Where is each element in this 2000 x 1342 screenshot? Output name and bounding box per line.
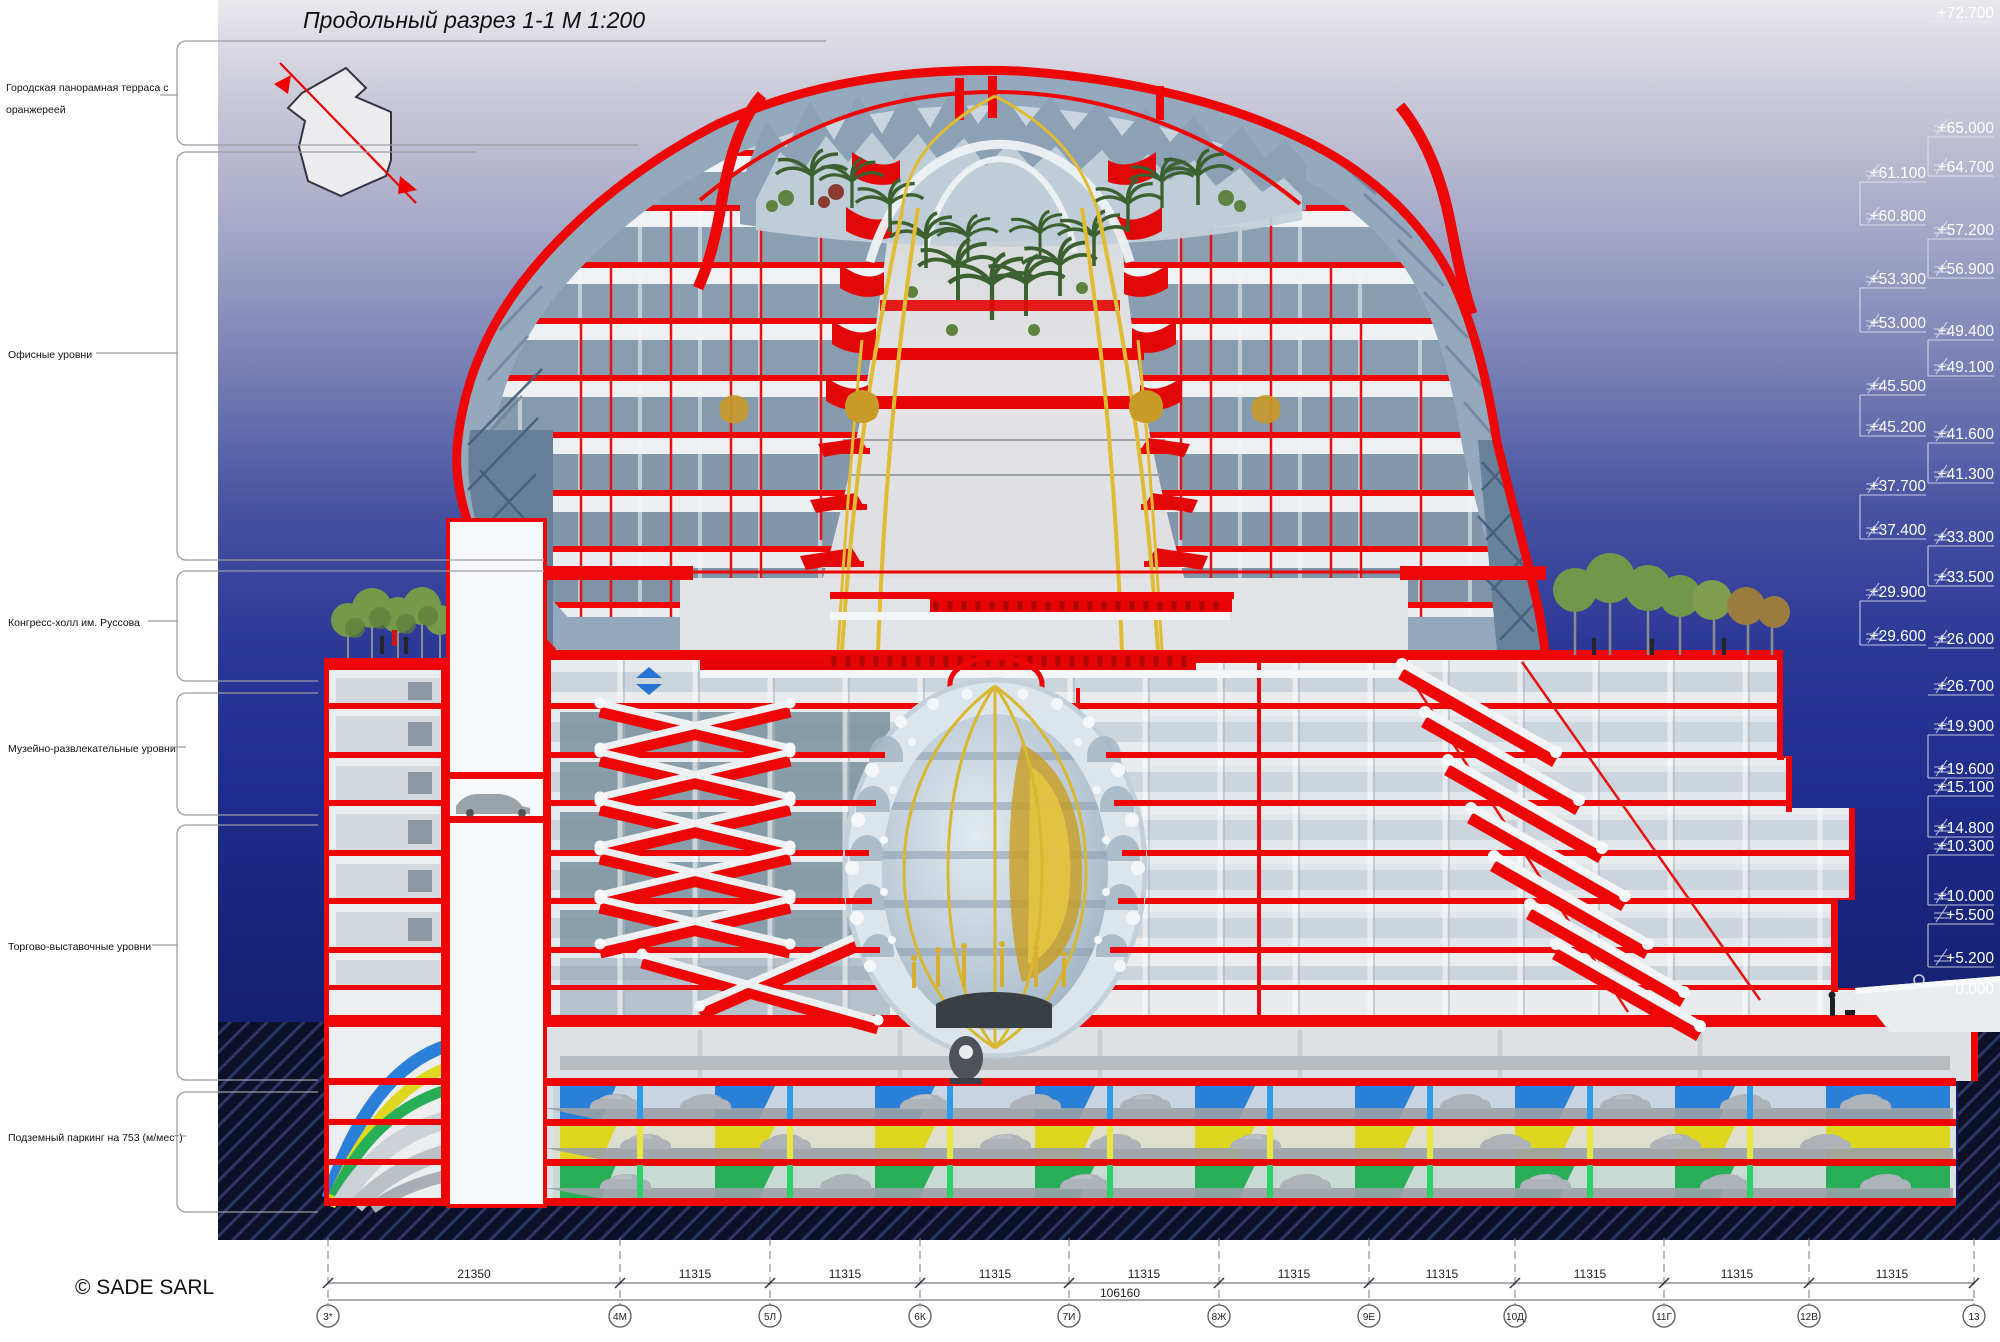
svg-text:+33.500: +33.500 xyxy=(1938,569,1995,586)
svg-text:+26.000: +26.000 xyxy=(1938,631,1995,648)
svg-text:11315: 11315 xyxy=(1278,1267,1311,1281)
svg-text:11315: 11315 xyxy=(979,1267,1012,1281)
svg-text:+72.700: +72.700 xyxy=(1938,5,1995,22)
svg-text:11Г: 11Г xyxy=(1656,1312,1672,1323)
svg-text:13: 13 xyxy=(1968,1312,1980,1323)
svg-text:Торгово-выставочные уровни: Торгово-выставочные уровни xyxy=(8,941,151,953)
svg-text:6К: 6К xyxy=(914,1312,926,1323)
svg-text:+49.100: +49.100 xyxy=(1938,359,1995,376)
svg-text:оранжереей: оранжереей xyxy=(6,104,66,116)
svg-text:+53.000: +53.000 xyxy=(1870,315,1927,332)
svg-text:+45.200: +45.200 xyxy=(1870,419,1927,436)
svg-text:+64.700: +64.700 xyxy=(1938,159,1995,176)
svg-text:+29.600: +29.600 xyxy=(1870,628,1927,645)
svg-text:11315: 11315 xyxy=(829,1267,862,1281)
svg-text:11315: 11315 xyxy=(1574,1267,1607,1281)
svg-text:12В: 12В xyxy=(1800,1312,1818,1323)
svg-text:11315: 11315 xyxy=(1426,1267,1459,1281)
svg-text:9Е: 9Е xyxy=(1363,1312,1376,1323)
svg-text:4М: 4М xyxy=(613,1312,627,1323)
svg-text:11315: 11315 xyxy=(679,1267,712,1281)
svg-text:Офисные уровни: Офисные уровни xyxy=(8,349,92,361)
svg-text:Музейно-развлекательные уровни: Музейно-развлекательные уровни xyxy=(8,743,176,755)
svg-text:+37.400: +37.400 xyxy=(1870,522,1927,539)
svg-text:+19.900: +19.900 xyxy=(1938,718,1995,735)
svg-text:11315: 11315 xyxy=(1721,1267,1754,1281)
svg-text:+14.800: +14.800 xyxy=(1938,820,1995,837)
svg-text:Подземный паркинг на 753 (м/ме: Подземный паркинг на 753 (м/мест) xyxy=(8,1132,183,1144)
svg-text:+19.600: +19.600 xyxy=(1938,761,1995,778)
svg-text:+33.800: +33.800 xyxy=(1938,529,1995,546)
svg-text:© SADE SARL: © SADE SARL xyxy=(75,1276,214,1299)
svg-text:+15.100: +15.100 xyxy=(1938,779,1995,796)
svg-text:+10.300: +10.300 xyxy=(1938,838,1995,855)
svg-text:7И: 7И xyxy=(1063,1312,1076,1323)
svg-text:+57.200: +57.200 xyxy=(1938,222,1995,239)
svg-text:Городская панорамная терраса с: Городская панорамная терраса с xyxy=(6,82,169,94)
svg-text:11315: 11315 xyxy=(1876,1267,1909,1281)
svg-text:+53.300: +53.300 xyxy=(1870,271,1927,288)
svg-text:+10.000: +10.000 xyxy=(1938,888,1995,905)
svg-text:+45.500: +45.500 xyxy=(1870,378,1927,395)
svg-text:21350: 21350 xyxy=(457,1267,491,1281)
svg-text:3*: 3* xyxy=(323,1312,333,1323)
svg-text:+37.700: +37.700 xyxy=(1870,478,1927,495)
svg-text:+26.700: +26.700 xyxy=(1938,678,1995,695)
svg-text:+65.000: +65.000 xyxy=(1938,120,1995,137)
svg-text:+41.300: +41.300 xyxy=(1938,466,1995,483)
svg-text:Продольный разрез 1-1 М 1:2: Продольный разрез 1-1 М 1:200 xyxy=(303,7,645,33)
svg-text:0.000: 0.000 xyxy=(1955,981,1994,998)
svg-text:10Д: 10Д xyxy=(1506,1312,1524,1323)
svg-text:8Ж: 8Ж xyxy=(1212,1312,1228,1323)
svg-text:+5.500: +5.500 xyxy=(1946,907,1994,924)
svg-text:106160: 106160 xyxy=(1100,1286,1140,1300)
svg-text:+29.900: +29.900 xyxy=(1870,584,1927,601)
svg-text:5Л: 5Л xyxy=(764,1312,776,1323)
svg-text:11315: 11315 xyxy=(1128,1267,1161,1281)
svg-text:+5.200: +5.200 xyxy=(1946,950,1994,967)
svg-text:+56.900: +56.900 xyxy=(1938,261,1995,278)
svg-text:+41.600: +41.600 xyxy=(1938,426,1995,443)
svg-text:+49.400: +49.400 xyxy=(1938,323,1995,340)
svg-text:Конгресс-холл им. Руссова: Конгресс-холл им. Руссова xyxy=(8,617,140,629)
svg-text:+61.100: +61.100 xyxy=(1870,165,1927,182)
svg-text:+60.800: +60.800 xyxy=(1870,208,1927,225)
